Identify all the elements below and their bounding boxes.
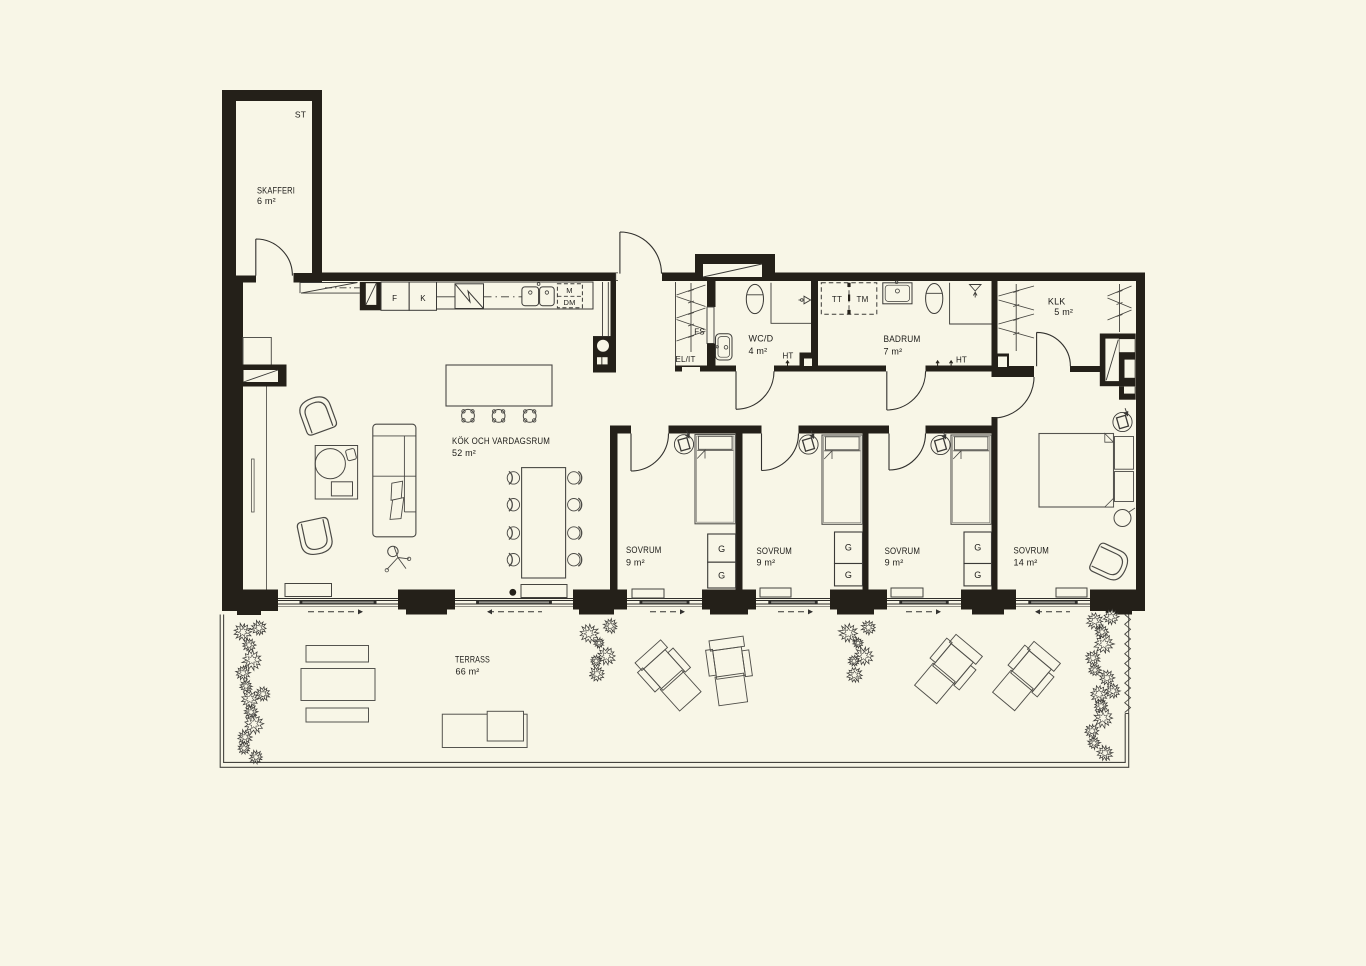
svg-text:BADRUM: BADRUM [884,334,921,344]
svg-text:G: G [845,543,852,553]
svg-text:52 m²: 52 m² [452,448,476,458]
svg-text:WC/D: WC/D [749,334,774,344]
svg-text:SOVRUM: SOVRUM [626,545,662,555]
svg-text:TERRASS: TERRASS [455,655,490,665]
svg-text:G: G [718,544,725,554]
svg-text:TT: TT [832,295,842,304]
svg-text:9 m²: 9 m² [626,557,645,567]
svg-text:G: G [718,570,725,580]
svg-text:SKAFFERI: SKAFFERI [257,186,295,196]
svg-text:G: G [974,543,981,553]
svg-text:G: G [845,570,852,580]
svg-text:TM: TM [857,295,869,304]
svg-text:9 m²: 9 m² [757,558,776,568]
svg-text:EL/IT: EL/IT [675,355,695,364]
svg-text:5 m²: 5 m² [1054,307,1073,317]
svg-text:6 m²: 6 m² [257,196,276,206]
svg-text:SOVRUM: SOVRUM [885,546,921,556]
svg-text:SOVRUM: SOVRUM [757,546,793,556]
svg-text:DM: DM [563,298,575,307]
svg-text:66 m²: 66 m² [456,667,480,677]
svg-text:G: G [974,570,981,580]
svg-text:HT: HT [956,356,967,365]
svg-text:4 m²: 4 m² [749,346,768,356]
svg-text:F: F [392,294,397,303]
svg-text:ST: ST [295,110,306,120]
svg-text:7 m²: 7 m² [884,347,903,357]
svg-text:HT: HT [782,351,793,360]
svg-text:SOVRUM: SOVRUM [1014,546,1050,556]
svg-text:KÖK OCH VARDAGSRUM: KÖK OCH VARDAGSRUM [452,436,550,446]
svg-text:9 m²: 9 m² [885,558,904,568]
svg-text:KLK: KLK [1048,296,1066,306]
svg-text:K: K [420,294,426,303]
svg-text:M: M [566,286,572,295]
svg-text:14 m²: 14 m² [1014,557,1038,567]
svg-text:FS: FS [694,327,705,336]
